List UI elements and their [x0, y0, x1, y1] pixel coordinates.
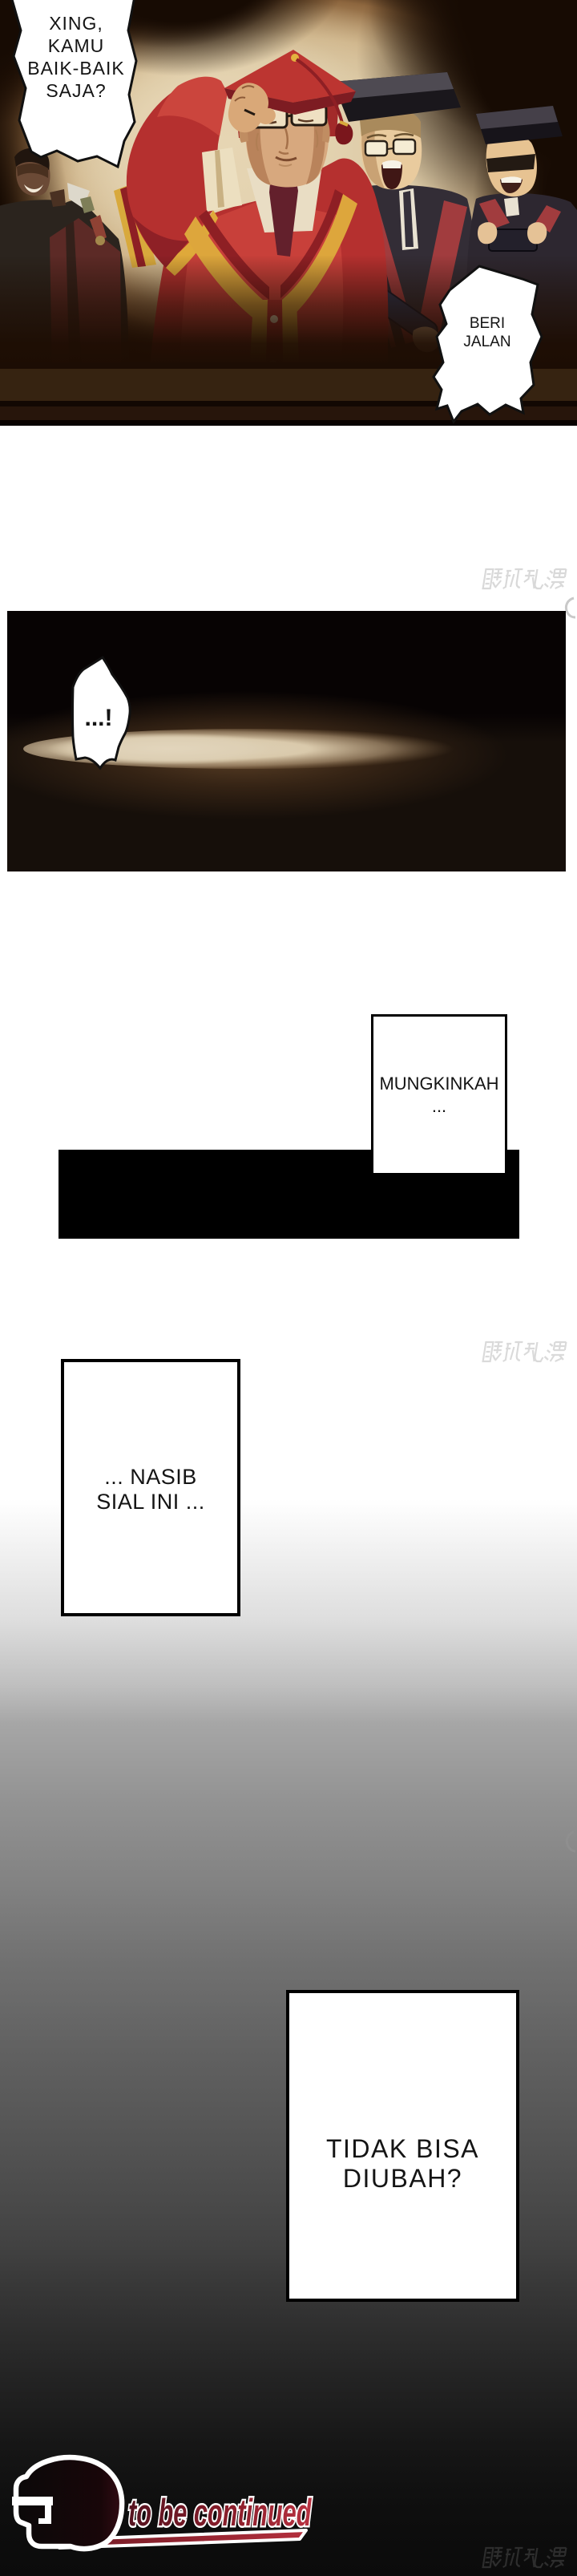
svg-text:to be continued: to be continued — [128, 2493, 313, 2534]
svg-text:BAIK-BAIK: BAIK-BAIK — [27, 58, 124, 79]
svg-text:KAMU: KAMU — [48, 35, 104, 56]
svg-text:XING,: XING, — [49, 13, 103, 34]
svg-text:SAJA?: SAJA? — [46, 80, 106, 101]
svg-text:BERI: BERI — [470, 315, 505, 332]
svg-text:JALAN: JALAN — [463, 334, 510, 350]
svg-text:...!: ...! — [85, 705, 113, 731]
